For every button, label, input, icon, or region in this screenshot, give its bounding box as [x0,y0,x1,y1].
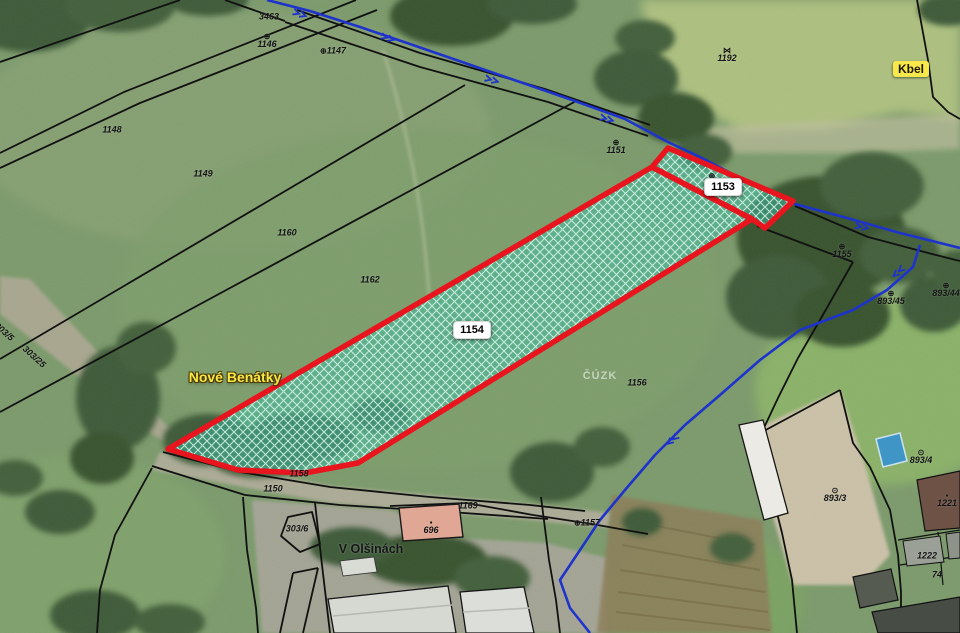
cadastral-map-viewport[interactable]: ČÚZK 3463⊕1146⊕1147⊕1151⋈119211481149116… [0,0,960,633]
house-1221 [917,471,960,531]
building-696 [399,504,463,541]
aerial-map-canvas [0,0,960,633]
outbuilding-1222 [903,536,944,566]
outbuilding-small [946,532,960,559]
